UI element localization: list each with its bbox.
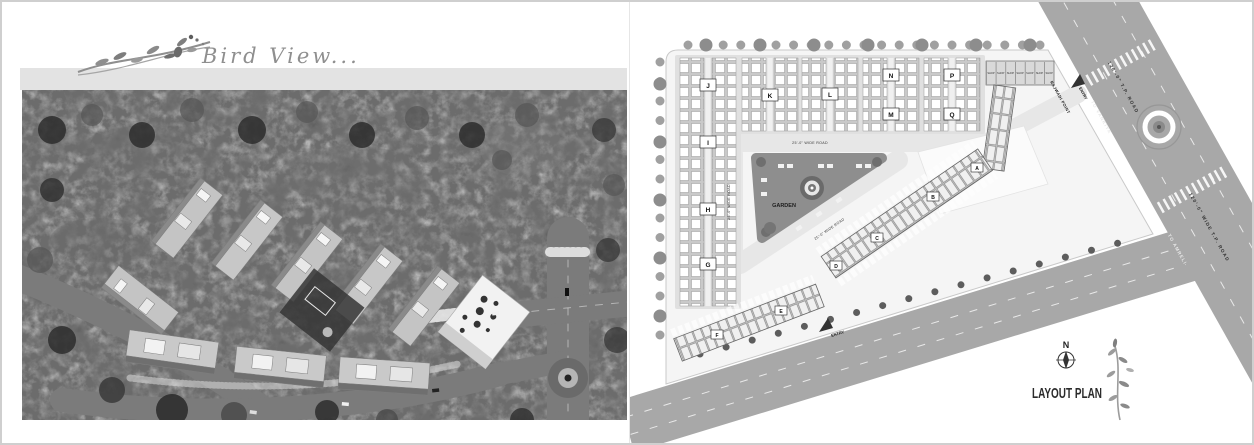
garden-label: GARDEN: [772, 203, 796, 209]
shops-row: SHOP SHOP SHOP SHOP SHOP SHOP SHOP: [986, 61, 1054, 85]
block-label: L: [828, 92, 832, 99]
layout-plan-drawing: GARDEN: [630, 2, 1254, 443]
roundabout: [548, 358, 588, 398]
block-label: P: [950, 73, 955, 80]
block-label: F: [715, 333, 718, 339]
block-label: J: [706, 83, 710, 90]
brochure-page: Bird View...: [0, 0, 1254, 445]
compass-north-label: N: [1063, 340, 1070, 350]
block-label: A: [975, 166, 979, 172]
block-label: B: [931, 195, 935, 201]
block-label: Q: [949, 112, 954, 119]
bird-view-panel: Bird View...: [2, 2, 629, 443]
block-label: D: [834, 264, 838, 270]
shop-unit-label: SHOP: [1016, 71, 1024, 75]
block-label: H: [706, 207, 711, 214]
branch-ornament-icon: [74, 30, 214, 86]
garden-fountain: [800, 176, 824, 200]
shop-unit-label: SHOP: [1036, 71, 1044, 75]
shop-unit-label: SHOP: [997, 71, 1005, 75]
block-label: C: [875, 236, 879, 242]
shop-unit-label: SHOP: [987, 71, 995, 75]
inner-road-label-left: 25'-0" WIDE ROAD: [727, 184, 731, 220]
shop-unit-label: SHOP: [1026, 71, 1034, 75]
bird-view-image: [22, 90, 627, 420]
inner-road-label-top: 25'-0" WIDE ROAD: [792, 141, 828, 145]
block-label: G: [705, 262, 710, 269]
bird-view-title: Bird View...: [202, 44, 360, 68]
block-label: K: [768, 93, 773, 100]
block-label: N: [889, 73, 894, 80]
shop-unit-label: SHOP: [1007, 71, 1015, 75]
block-label: I: [707, 140, 709, 147]
shop-unit-label: SHOP: [1046, 71, 1054, 75]
roundabout: [1137, 105, 1181, 149]
layout-plan-panel: GARDEN: [629, 2, 1254, 443]
block-label: M: [888, 112, 893, 119]
layout-plan-title: LAYOUT PLAN: [1032, 385, 1102, 402]
